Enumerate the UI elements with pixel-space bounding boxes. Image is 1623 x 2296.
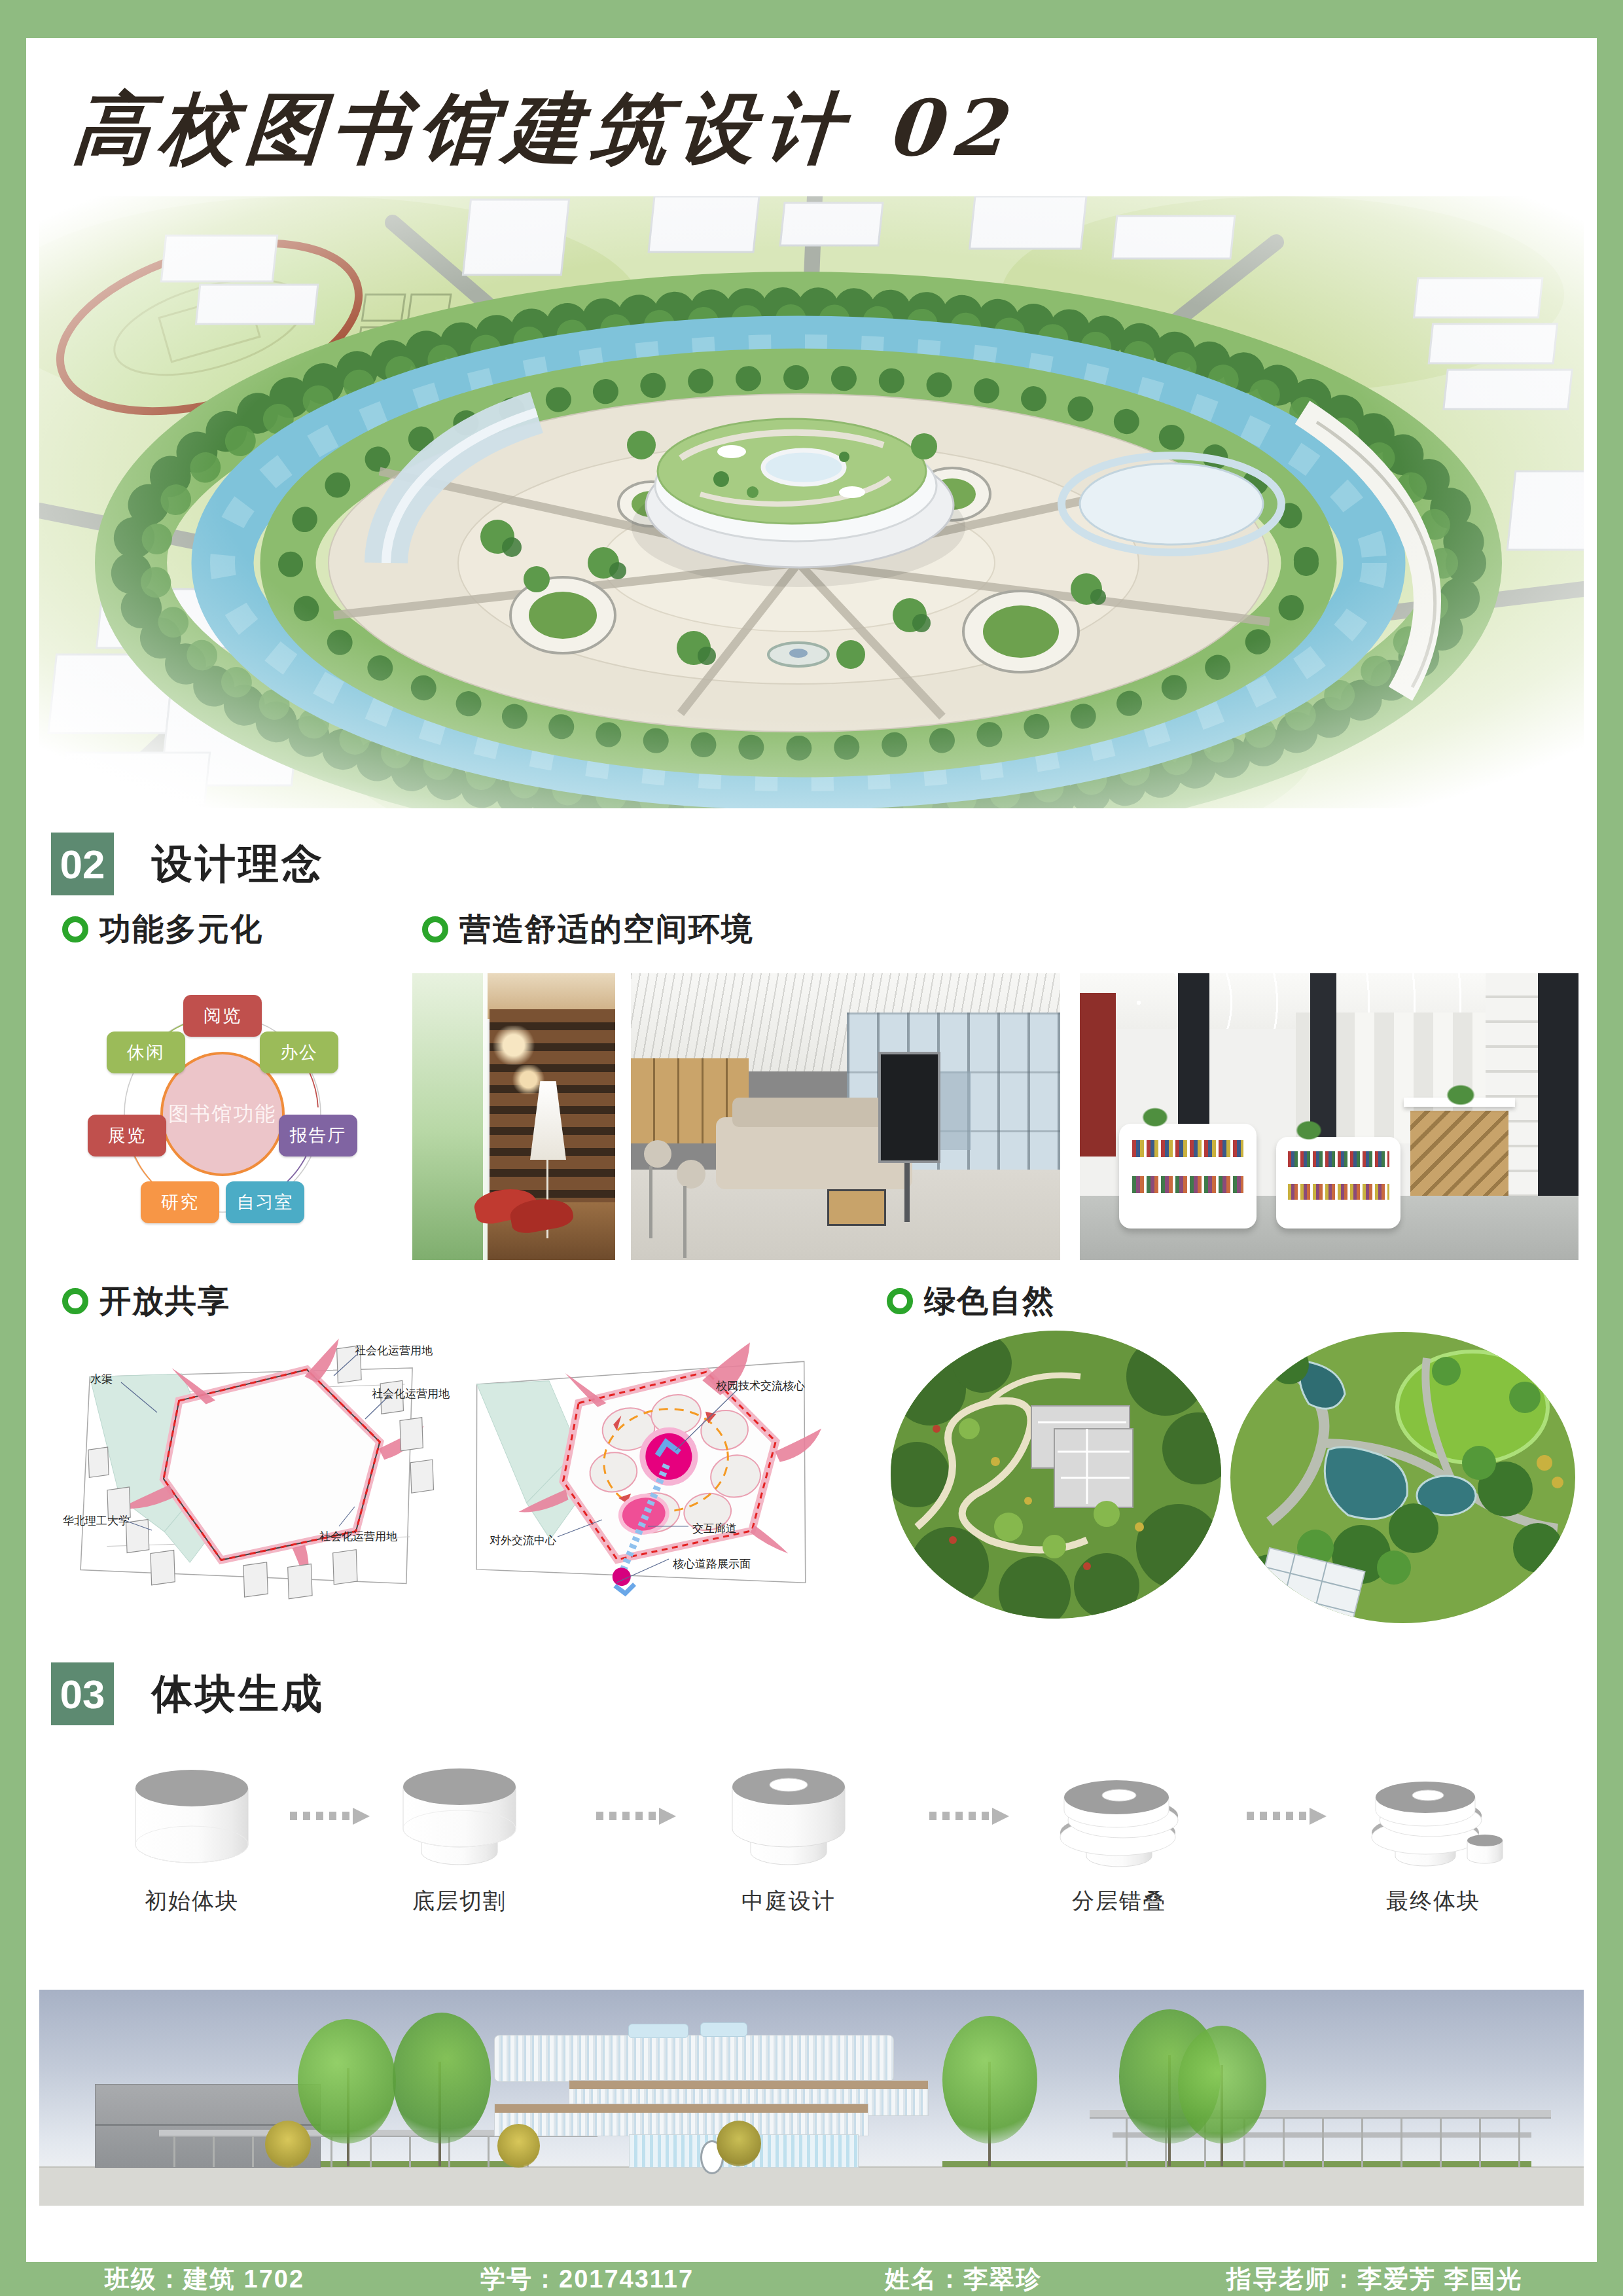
shrub-yellow (497, 2124, 540, 2168)
site-label-external-center: 对外交流中心 (490, 1533, 556, 1548)
site-label-water: 水渠 (90, 1372, 113, 1387)
site-label-social-1: 社会化运营用地 (355, 1343, 433, 1358)
interior-photo-lounge (631, 973, 1060, 1260)
shrub-yellow (717, 2121, 761, 2166)
site-diagram-circulation: 校园技术交流核心 对外交流中心 交互廊道 核心道路展示面 (452, 1329, 844, 1617)
curvy-display-shelf (1276, 1137, 1400, 1229)
subsection-function-title: 功能多元化 (99, 912, 263, 946)
massing-step-5-final (1355, 1761, 1512, 1872)
site-label-corridor: 交互廊道 (692, 1521, 737, 1536)
pendant-lamp-glow (491, 1026, 537, 1065)
frame-border-left (0, 0, 26, 2296)
section-02-title: 设计理念 (152, 833, 325, 895)
function-node-leisure: 休闲 (107, 1031, 185, 1073)
library-functions-diagram: 图书馆功能 阅览 办公 报告厅 自习室 研究 展览 休闲 (85, 977, 360, 1251)
footer-student-id: 学号：201743117 (480, 2262, 694, 2296)
massing-step-1-initial (113, 1761, 270, 1872)
bar-stool-leg (683, 1186, 687, 1258)
green-roof-photo-2 (1230, 1332, 1575, 1623)
circle-bullet-icon (422, 916, 448, 942)
footer-class: 班级：建筑 1702 (105, 2262, 304, 2296)
subsection-green-title: 绿色自然 (924, 1284, 1055, 1318)
books-row (1288, 1151, 1389, 1167)
wood-staircase (1410, 1111, 1508, 1196)
tree-canopy (1178, 2026, 1266, 2144)
footer-advisor: 指导老师：李爱芳 李国光 (1226, 2262, 1523, 2296)
site-label-university: 华北理工大学 (63, 1513, 130, 1528)
site-diagram-context-drawing (59, 1329, 452, 1617)
section-02-badge: 02 (51, 833, 114, 895)
section-03-title: 体块生成 (152, 1662, 325, 1725)
dashed-arrow-icon (596, 1808, 681, 1825)
skylight-cap (700, 2022, 747, 2037)
green-roof-drawing-1 (891, 1331, 1221, 1619)
tree-canopy (393, 2013, 491, 2144)
circle-bullet-icon (62, 916, 88, 942)
function-node-research: 研究 (141, 1181, 219, 1223)
circle-bullet-icon (62, 1288, 88, 1314)
site-label-campus-core: 校园技术交流核心 (716, 1378, 805, 1393)
massing-label-3: 中庭设计 (741, 1886, 836, 1916)
subsection-comfort-title: 营造舒适的空间环境 (459, 912, 754, 946)
potted-plant (1142, 1107, 1168, 1127)
poster-title: 高校图书馆建筑设计 02 (69, 77, 1058, 182)
frame-border-right (1597, 0, 1623, 2296)
dashed-arrow-icon (1247, 1808, 1332, 1825)
massing-step-4-stagger (1041, 1761, 1198, 1872)
tv-stand (904, 1163, 910, 1222)
library-top-drum (494, 2035, 894, 2082)
books-row (1132, 1176, 1243, 1193)
site-diagram-context: 水渠 社会化运营用地 社会化运营用地 社会化运营用地 华北理工大学 (59, 1329, 452, 1617)
aerial-site-rendering (39, 196, 1584, 808)
section-03-badge: 03 (51, 1662, 114, 1725)
footer-name: 姓名：李翠珍 (885, 2262, 1042, 2296)
subsection-open-title: 开放共享 (99, 1284, 230, 1318)
sofa-backs (732, 1098, 896, 1127)
function-node-lecture: 报告厅 (279, 1115, 357, 1157)
grass-strip (942, 2161, 1531, 2167)
potted-plant (1446, 1085, 1475, 1105)
dashed-arrow-icon (290, 1808, 375, 1825)
interior-photo-library-hall (1080, 973, 1578, 1260)
function-node-studyroom: 自习室 (226, 1181, 304, 1223)
red-accent-wall (1080, 993, 1116, 1157)
massing-label-1: 初始体块 (145, 1886, 239, 1916)
green-roof-photo-1 (891, 1331, 1221, 1619)
skylight-cap (628, 2024, 688, 2038)
library-low-drum (494, 2104, 868, 2136)
books-row (1132, 1140, 1243, 1157)
function-node-reading: 阅览 (183, 995, 262, 1037)
footer-bar: 班级：建筑 1702 学号：201743117 姓名：李翠珍 指导老师：李爱芳 … (0, 2262, 1623, 2296)
frame-border-top (0, 0, 1623, 38)
bar-stool-leg (649, 1166, 652, 1238)
site-diagram-circulation-drawing (452, 1329, 844, 1617)
books-row (1288, 1184, 1389, 1200)
side-table (827, 1189, 886, 1226)
building-elevation-rendering (39, 1990, 1584, 2206)
ground-plane (39, 2166, 1584, 2206)
interior-photo-reading-nook (412, 973, 615, 1260)
bar-stool (677, 1160, 705, 1189)
shrub-yellow (265, 2121, 311, 2168)
green-roof-drawing-2 (1230, 1332, 1575, 1623)
bar-stool (644, 1140, 671, 1168)
tv-screen (878, 1052, 940, 1163)
massing-label-5: 最终体块 (1386, 1886, 1480, 1916)
massing-label-4: 分层错叠 (1072, 1886, 1166, 1916)
function-node-exhibit: 展览 (88, 1115, 166, 1157)
potted-plant (1296, 1121, 1322, 1140)
massing-step-2-cut-base (381, 1761, 538, 1872)
massing-label-2: 底层切割 (412, 1886, 507, 1916)
circle-bullet-icon (887, 1288, 913, 1314)
site-label-social-3: 社会化运营用地 (319, 1529, 397, 1544)
massing-step-3-atrium (710, 1761, 867, 1872)
function-node-office: 办公 (260, 1031, 338, 1073)
poster-page: { "page": { "title": "高校图书馆建筑设计 02" }, "… (0, 0, 1623, 2296)
site-label-road-face: 核心道路展示面 (673, 1556, 751, 1571)
tree-canopy (298, 2019, 396, 2144)
tree-canopy (942, 2016, 1037, 2144)
site-label-social-2: 社会化运营用地 (372, 1386, 450, 1401)
dashed-arrow-icon (929, 1808, 1014, 1825)
